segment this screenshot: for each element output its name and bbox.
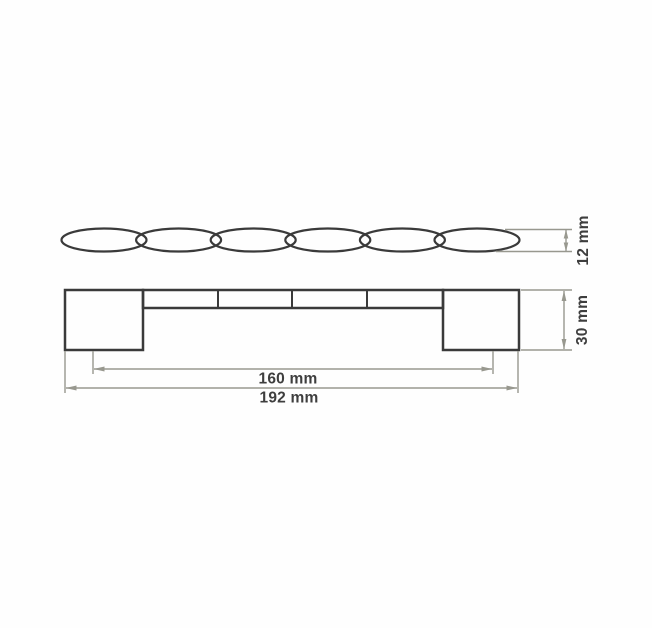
arrowhead-down xyxy=(562,339,567,350)
profile-scallop xyxy=(285,229,370,252)
arrowhead-up xyxy=(564,230,569,239)
dimension-label-overall-width: 192 mm xyxy=(260,390,319,407)
profile-scallop xyxy=(435,229,520,252)
dimension-label-profile-height: 12 mm xyxy=(575,215,592,265)
arrowhead-right xyxy=(482,367,493,372)
dimension-label-hole-spacing: 160 mm xyxy=(259,371,318,388)
handle-technical-drawing: 12 mm 30 mm xyxy=(0,0,652,628)
arrowhead-down xyxy=(564,243,569,252)
profile-scallop xyxy=(360,229,445,252)
mounting-foot-right xyxy=(443,290,519,350)
arrowhead-right xyxy=(507,386,518,391)
top-view-profile xyxy=(62,229,520,252)
profile-scallop xyxy=(136,229,221,252)
profile-scallop xyxy=(211,229,296,252)
profile-scallop xyxy=(62,229,147,252)
drawing-page: 12 mm 30 mm xyxy=(0,0,652,628)
arrowhead-up xyxy=(562,291,567,302)
arrowhead-left xyxy=(66,386,77,391)
dimension-label-front-height: 30 mm xyxy=(574,295,591,345)
arrowhead-left xyxy=(94,367,105,372)
front-view-body xyxy=(65,290,519,350)
mounting-foot-left xyxy=(65,290,143,350)
